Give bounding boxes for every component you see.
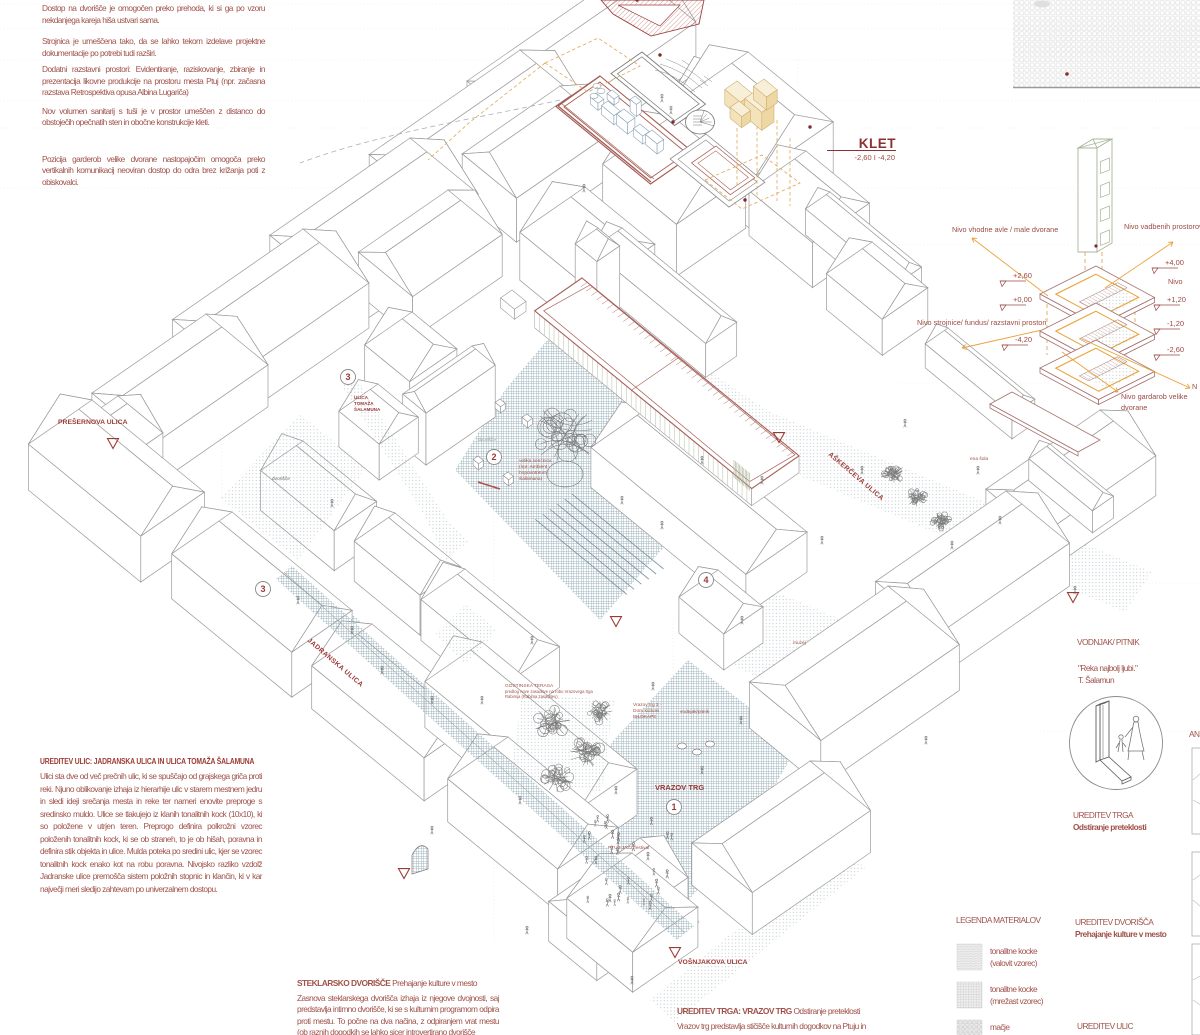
svg-text:muzej: muzej — [793, 640, 806, 646]
svg-text:2: 2 — [491, 452, 496, 462]
svg-text:+0,00: +0,00 — [1013, 295, 1032, 304]
svg-text:BILDKAPE: BILDKAPE — [633, 714, 656, 720]
svg-text:3: 3 — [260, 584, 265, 594]
svg-text:VOŠNJAKOVA ULICA: VOŠNJAKOVA ULICA — [678, 957, 748, 966]
svg-text:Rabimja (Rabima zasaditev): Rabimja (Rabima zasaditev) — [505, 694, 558, 699]
svg-text:vodnjak/pitnik: vodnjak/pitnik — [680, 709, 710, 715]
svg-text:velika senčnica: velika senčnica — [519, 458, 552, 464]
svg-text:Nivo vhodne avle / male dvoran: Nivo vhodne avle / male dvorane — [952, 225, 1058, 234]
svg-text:dvorane: dvorane — [1121, 403, 1147, 412]
svg-text:Nivo strojnice/ fundus/ razsta: Nivo strojnice/ fundus/ razstavni prosto… — [917, 318, 1047, 327]
svg-text:(npr. Ambient: (npr. Ambient — [519, 464, 548, 470]
svg-text:Nivo vadbenih prostorov: Nivo vadbenih prostorov — [1124, 222, 1200, 231]
svg-text:-2,60 I -4,20: -2,60 I -4,20 — [855, 153, 895, 162]
svg-text:Vrazov trg 1 -: Vrazov trg 1 - — [633, 702, 662, 708]
svg-text:+4,00: +4,00 — [1165, 258, 1184, 267]
svg-text:hopovotorum: hopovotorum — [519, 470, 547, 476]
svg-text:PREŠERNOVA ULICA: PREŠERNOVA ULICA — [58, 417, 128, 426]
svg-text:ULICA: ULICA — [354, 395, 369, 400]
svg-text:Nivo gardarob velike: Nivo gardarob velike — [1121, 392, 1188, 401]
svg-text:ŠALAMUNA: ŠALAMUNA — [354, 405, 381, 412]
svg-text:4: 4 — [703, 575, 708, 585]
svg-text:Nivo: Nivo — [1168, 277, 1183, 286]
svg-text:-4,20: -4,20 — [1015, 335, 1032, 344]
svg-text:Šalamuna): Šalamuna) — [519, 475, 543, 482]
svg-text:TOMAŽA: TOMAŽA — [354, 399, 374, 406]
svg-text:1: 1 — [671, 802, 676, 812]
svg-text:3: 3 — [345, 372, 350, 382]
svg-text:-2,60: -2,60 — [1167, 345, 1184, 354]
svg-text:Dom kulture: Dom kulture — [633, 708, 659, 714]
svg-text:-1,20: -1,20 — [1167, 319, 1184, 328]
svg-text:dvorišče: dvorišče — [478, 437, 496, 443]
svg-text:+2,60: +2,60 — [1013, 271, 1032, 280]
svg-text:+1,20: +1,20 — [1167, 295, 1186, 304]
svg-text:KLET: KLET — [859, 136, 897, 151]
svg-text:N: N — [1192, 382, 1197, 391]
svg-text:ena šola: ena šola — [970, 456, 988, 462]
svg-text:PTUJ-JAZZ festival: PTUJ-JAZZ festival — [608, 845, 649, 851]
svg-text:dvorišče: dvorišče — [272, 476, 290, 482]
svg-text:VRAZOV TRG: VRAZOV TRG — [655, 783, 704, 792]
